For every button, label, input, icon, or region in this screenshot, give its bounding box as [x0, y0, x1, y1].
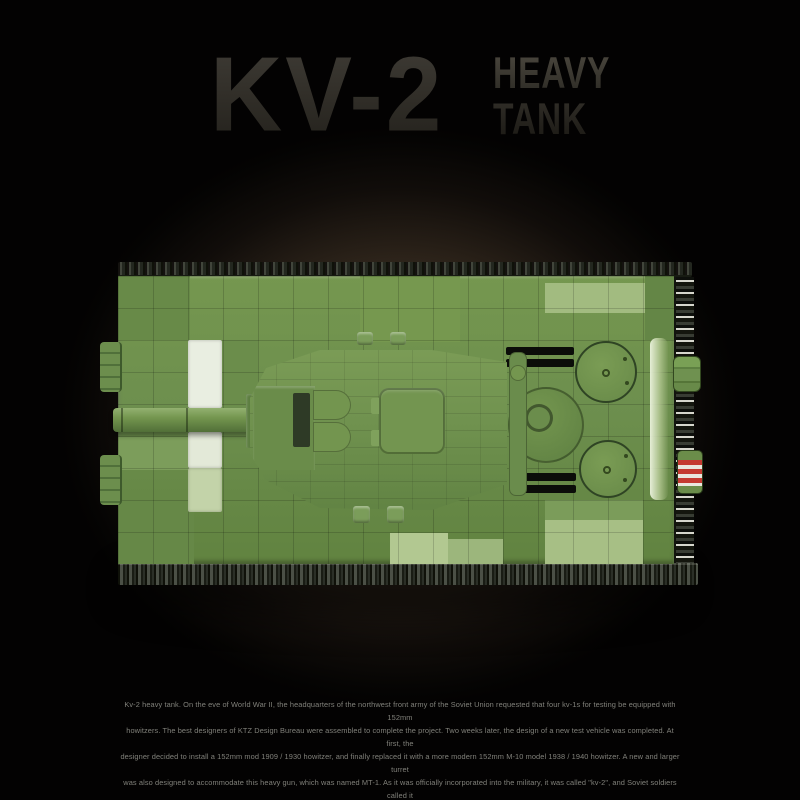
hull-brick: [545, 500, 643, 520]
description-line: was also designed to accommodate this he…: [118, 776, 682, 800]
product-image: KV-2 HEAVY TANK: [0, 0, 800, 800]
gun-barrel: [113, 408, 253, 432]
tank-track-bottom: [118, 563, 698, 585]
rear-cylinder: [673, 356, 701, 392]
hull-brick: [545, 283, 645, 313]
hull-stud: [387, 506, 404, 523]
hull-brick: [448, 539, 503, 564]
subtitle-line-heavy: HEAVY: [493, 50, 610, 96]
hull-accent-stripe-lower: [188, 432, 222, 468]
subtitle-line-tank: TANK: [493, 96, 610, 142]
hull-brick: [118, 276, 190, 340]
product-subtitle: HEAVY TANK: [493, 50, 610, 142]
hatch-dot: [623, 478, 627, 482]
hatch-dot: [623, 357, 627, 361]
hull-accent-stripe-lower2: [188, 468, 222, 512]
hull-accent-stripe-upper: [188, 340, 222, 408]
hull-brick: [645, 276, 674, 340]
hull-stud: [357, 332, 373, 345]
hull-stud: [353, 506, 370, 523]
description-line: Kv-2 heavy tank. On the eve of World War…: [118, 698, 682, 724]
exhaust-red-white-stripes: [678, 460, 702, 486]
turret-ring-inner: [525, 404, 553, 432]
left-axle-end-upper: [100, 342, 122, 392]
turret-pivot-head: [510, 365, 526, 381]
tank-turret: [243, 346, 513, 514]
barrel-seam: [186, 408, 188, 432]
tank-track-right: [674, 277, 694, 565]
engine-hatch-upper: [575, 341, 637, 403]
left-axle-end-lower: [100, 455, 122, 505]
hull-brick: [118, 500, 194, 564]
rear-edge-highlight: [650, 338, 668, 500]
turret-top-hatch: [379, 388, 445, 454]
hull-brick: [390, 533, 448, 564]
turret-rounded-block-lower: [313, 422, 351, 452]
turret-mantlet-slot: [293, 393, 310, 447]
description-line: designer decided to install a 152mm mod …: [118, 750, 682, 776]
hatch-dot: [625, 381, 629, 385]
hull-brick: [360, 276, 460, 342]
turret-rounded-block-upper: [313, 390, 351, 420]
hull-stud: [390, 332, 406, 345]
barrel-seam: [121, 408, 123, 432]
exhaust-striped: [677, 450, 703, 494]
hatch-dot: [624, 454, 628, 458]
exhaust-cap-bottom: [678, 486, 702, 494]
exhaust-cap-top: [678, 451, 702, 460]
hatch-center-dot: [602, 369, 610, 377]
description-line: howitzers. The best designers of KTZ Des…: [118, 724, 682, 750]
hull-brick: [545, 520, 643, 564]
tank-model-top-view: [103, 258, 703, 590]
product-description: Kv-2 heavy tank. On the eve of World War…: [118, 698, 682, 800]
product-title: KV-2: [210, 34, 444, 156]
tank-track-top: [118, 262, 692, 277]
hull-brick: [118, 437, 191, 470]
hatch-center-dot: [603, 466, 611, 474]
engine-hatch-lower: [579, 440, 637, 498]
